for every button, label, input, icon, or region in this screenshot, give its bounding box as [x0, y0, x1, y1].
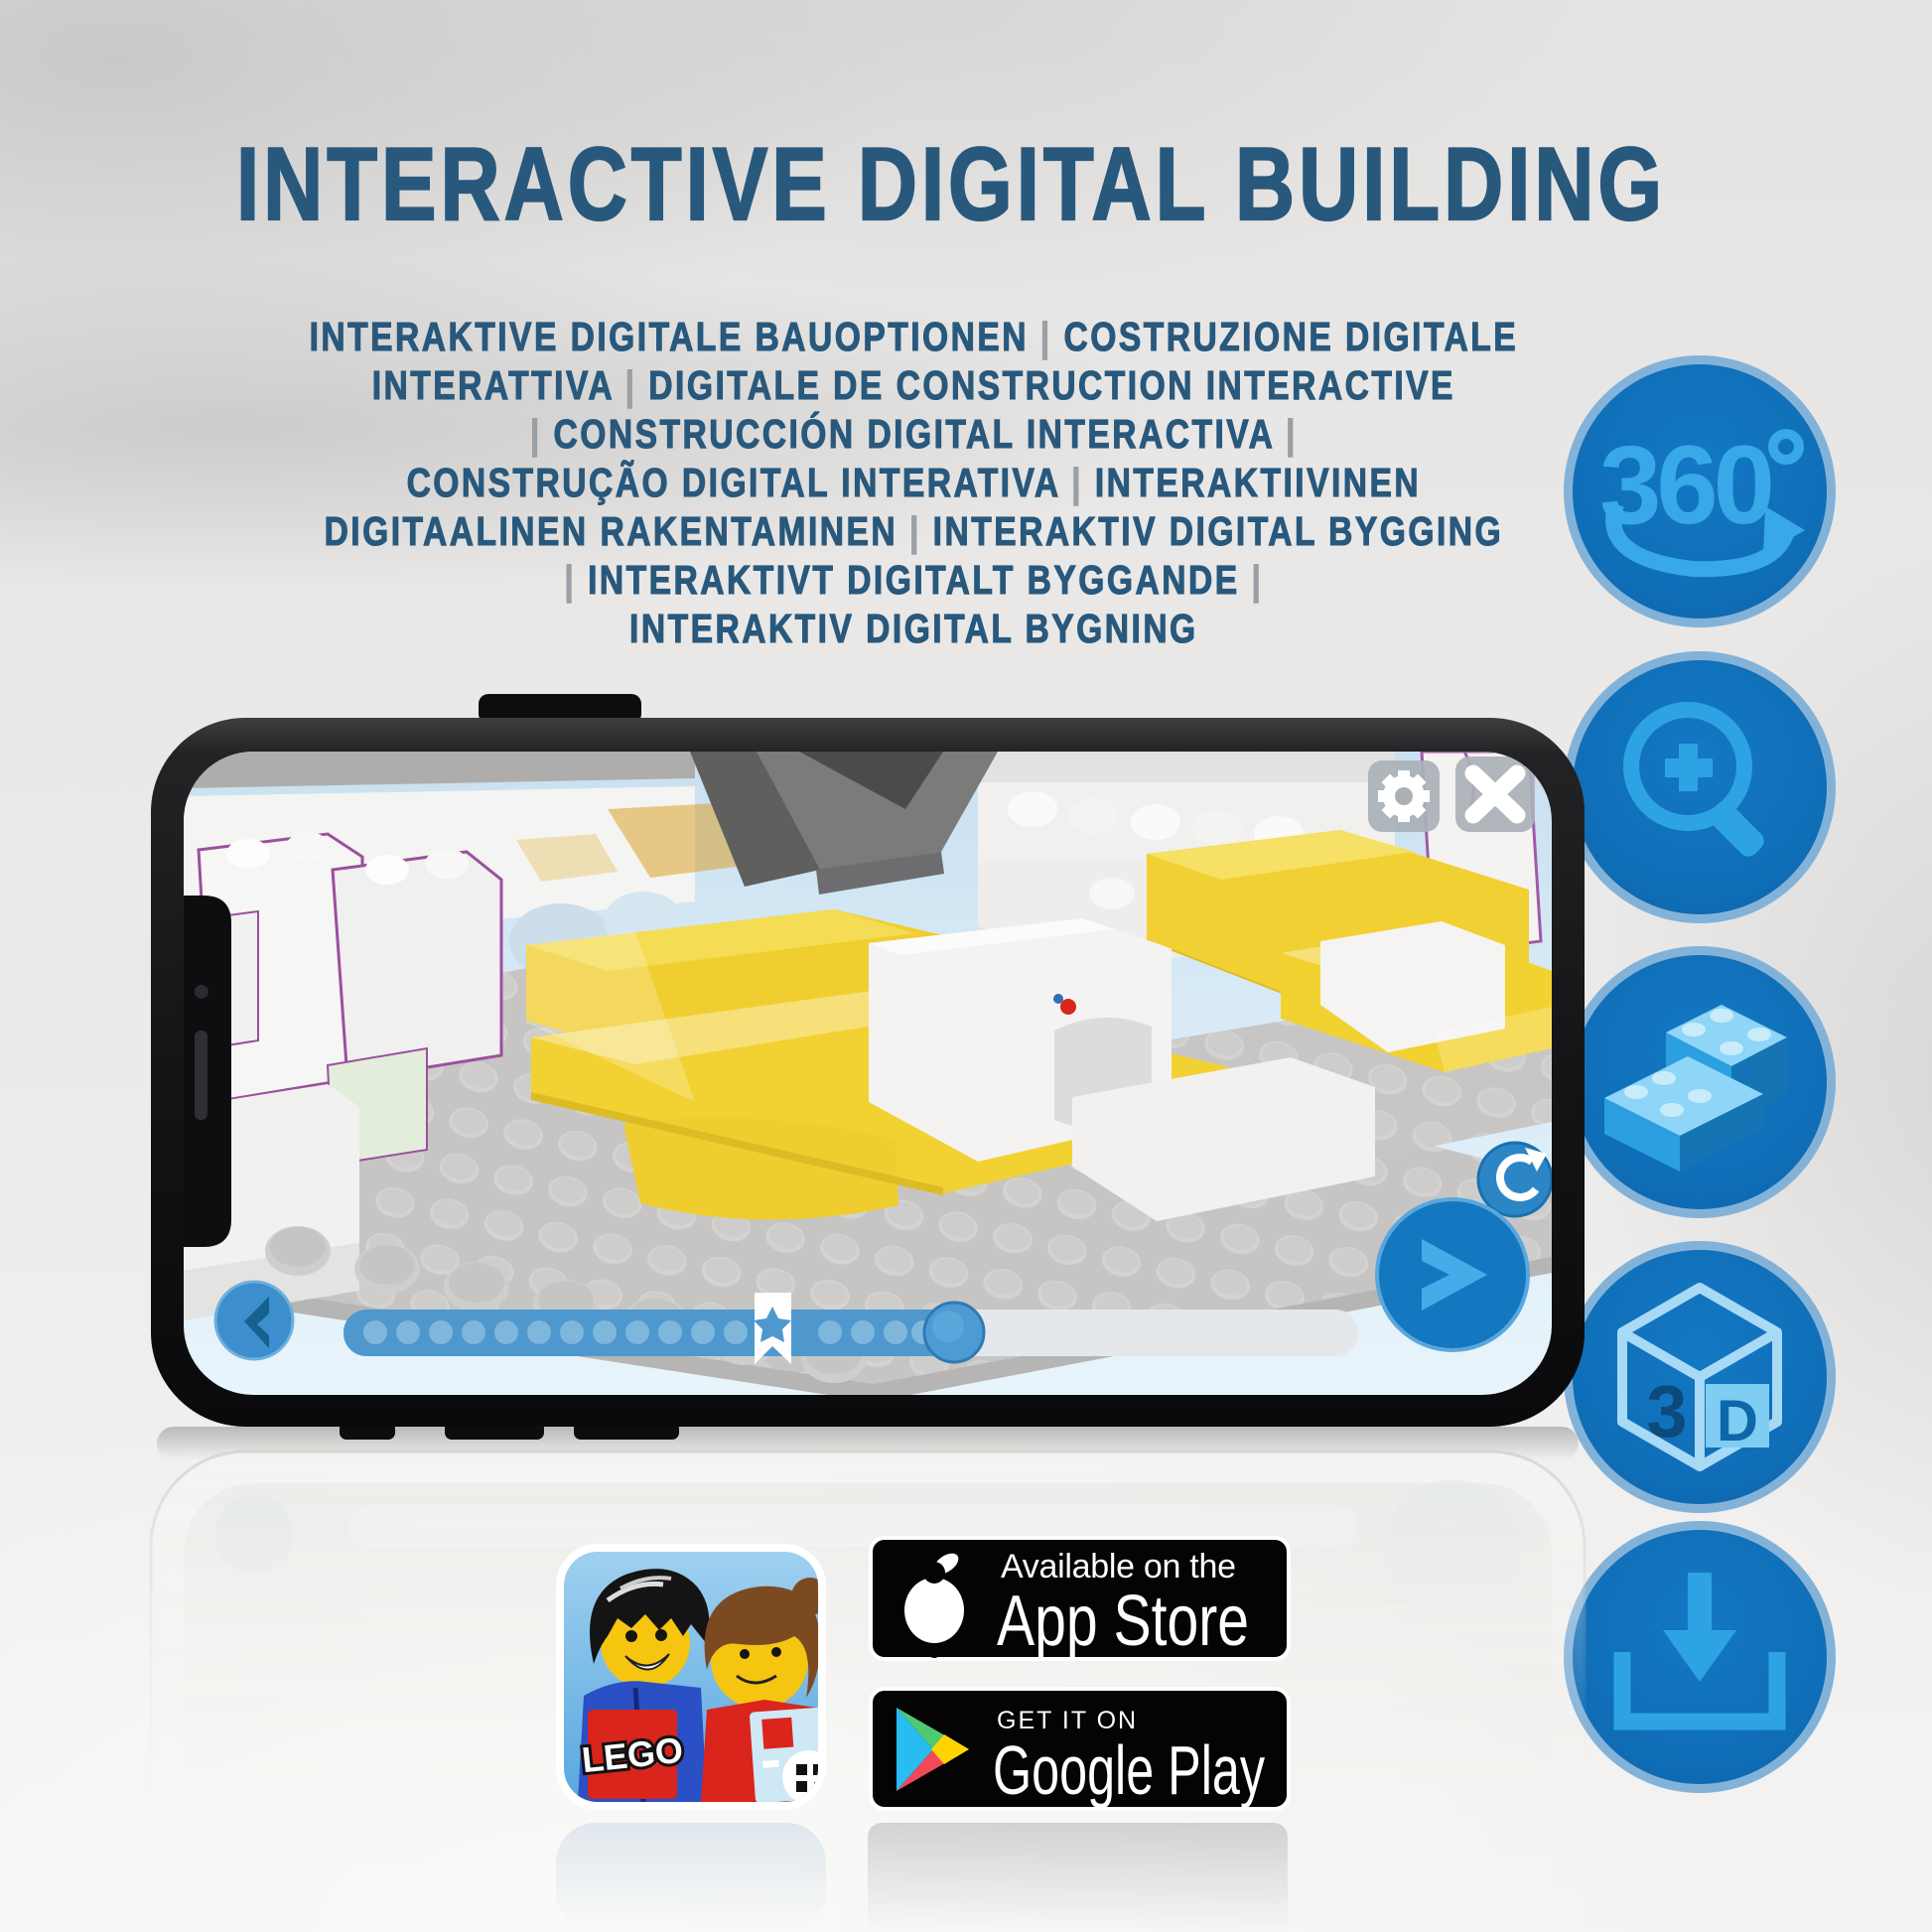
svg-text:360: 360 [1599, 423, 1771, 547]
svg-text:3: 3 [1646, 1370, 1687, 1452]
svg-text:GET IT ON: GET IT ON [997, 1707, 1138, 1734]
svg-text:Google Play: Google Play [993, 1731, 1265, 1809]
svg-text:Available on the: Available on the [1001, 1548, 1236, 1586]
svg-text:App Store: App Store [997, 1582, 1249, 1661]
svg-text:D: D [1717, 1389, 1758, 1453]
